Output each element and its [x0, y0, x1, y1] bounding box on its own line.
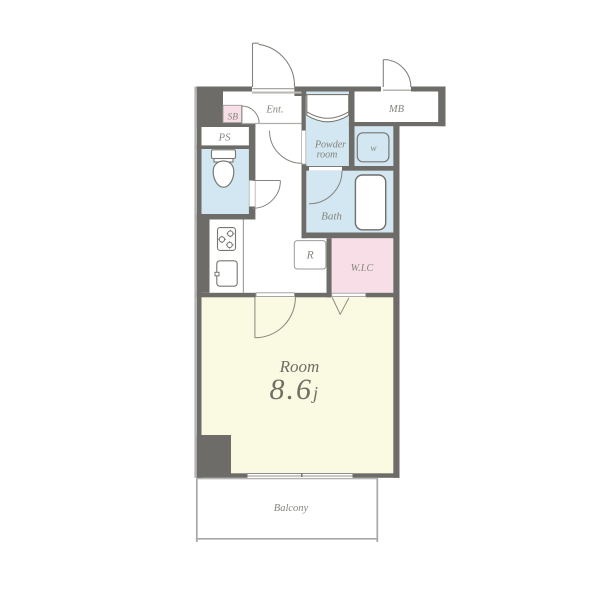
svg-text:room: room: [317, 150, 338, 161]
svg-text:MB: MB: [388, 104, 405, 115]
svg-text:Bath: Bath: [321, 211, 342, 223]
svg-text:8.6j: 8.6j: [270, 373, 321, 406]
svg-text:Balcony: Balcony: [274, 503, 309, 514]
svg-text:W.I.C: W.I.C: [351, 263, 374, 274]
svg-text:R: R: [306, 250, 314, 262]
svg-text:w: w: [370, 143, 376, 153]
svg-text:SB: SB: [228, 113, 239, 123]
svg-text:PS: PS: [218, 133, 231, 144]
svg-text:Ent.: Ent.: [265, 105, 283, 116]
